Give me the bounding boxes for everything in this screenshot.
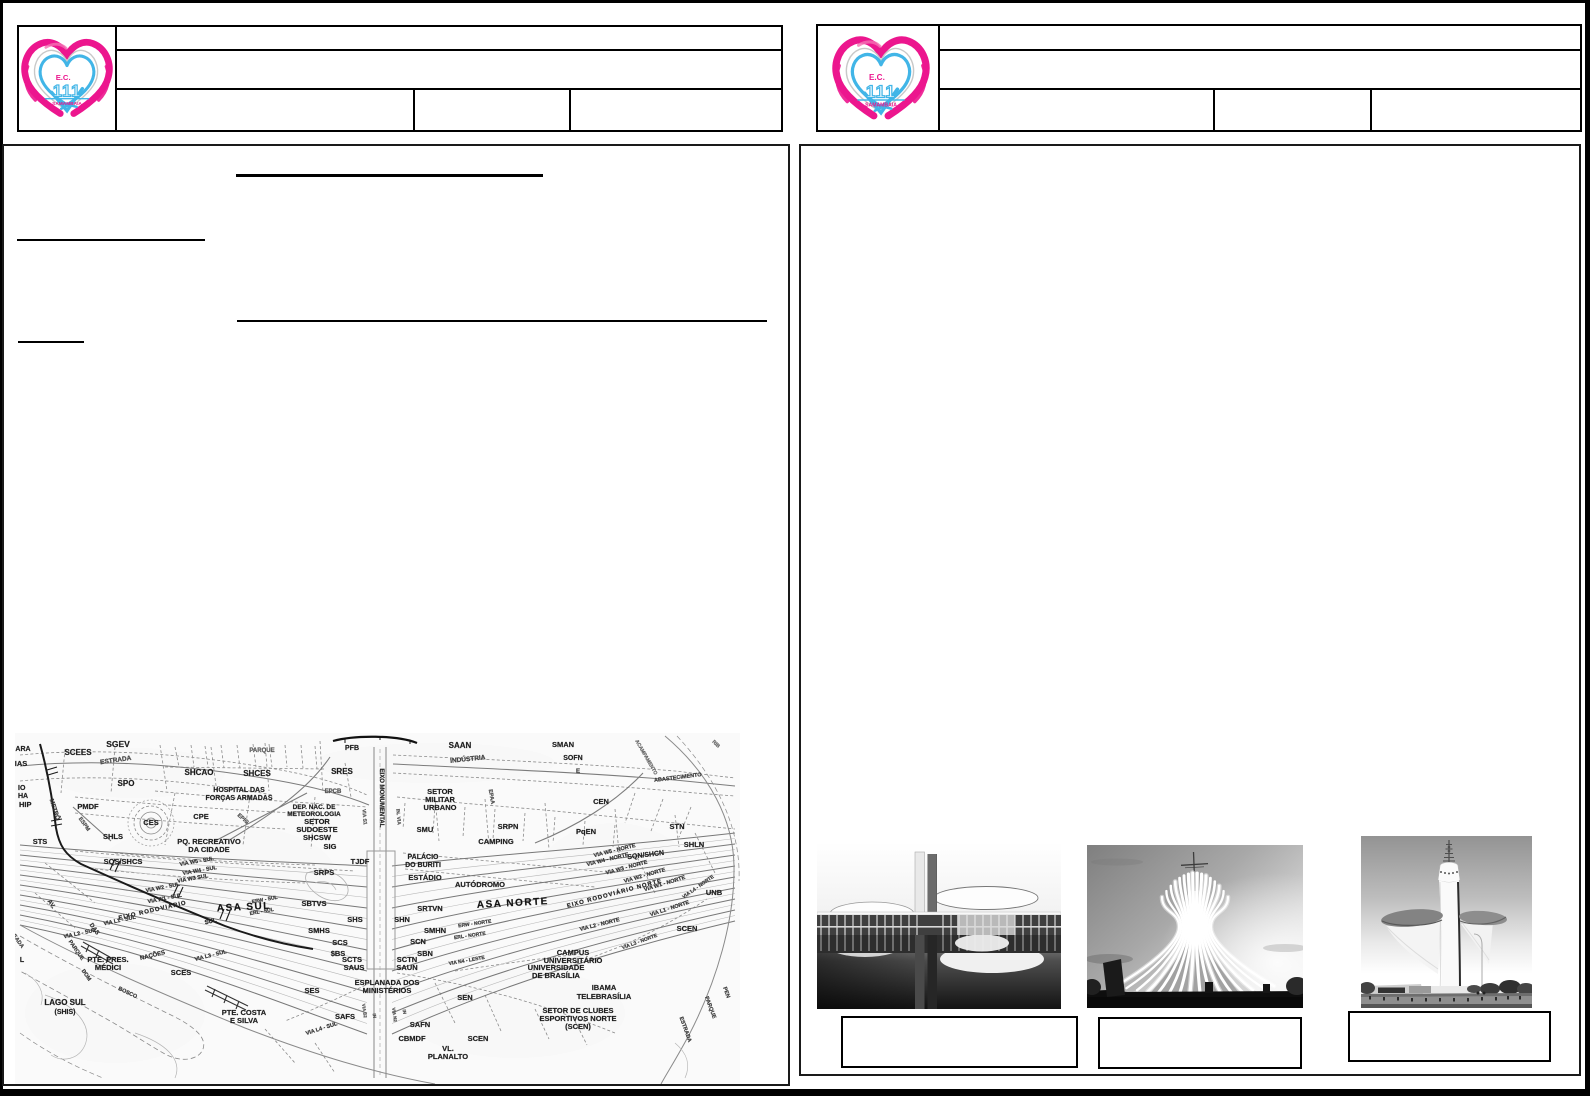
svg-text:SES: SES (304, 986, 319, 995)
svg-text:SBTVS: SBTVS (301, 899, 326, 908)
svg-text:PMDF: PMDF (77, 802, 99, 811)
svg-text:SHLS: SHLS (103, 832, 123, 841)
svg-text:SHS: SHS (347, 915, 362, 924)
svg-text:111: 111 (866, 81, 896, 101)
svg-text:SHN: SHN (394, 915, 410, 924)
svg-text:SHCAO: SHCAO (185, 768, 214, 777)
svg-text:SAUS: SAUS (344, 963, 365, 972)
svg-text:SRTVN: SRTVN (417, 904, 442, 913)
svg-text:SHCSW: SHCSW (303, 833, 332, 842)
svg-text:HA: HA (18, 793, 28, 800)
svg-text:AUTÓDROMO: AUTÓDROMO (455, 880, 505, 889)
svg-text:SCES: SCES (171, 968, 191, 977)
svg-text:111: 111 (53, 82, 81, 100)
svg-text:(SCEN): (SCEN) (565, 1022, 591, 1031)
svg-text:SCS: SCS (332, 938, 347, 947)
svg-text:SBN: SBN (417, 949, 433, 958)
svg-text:CEN: CEN (593, 797, 609, 806)
svg-text:SCEN: SCEN (468, 1034, 489, 1043)
svg-text:SAMAMBAIA: SAMAMBAIA (52, 101, 82, 107)
svg-text:SAMAMBAIA: SAMAMBAIA (865, 103, 897, 109)
svg-text:SCN: SCN (410, 937, 426, 946)
svg-text:IBAMA: IBAMA (592, 983, 617, 992)
svg-text:CES: CES (143, 818, 158, 827)
svg-text:CBMDF: CBMDF (398, 1034, 425, 1043)
svg-text:LAGO SUL: LAGO SUL (44, 998, 85, 1007)
svg-text:SCEN: SCEN (677, 924, 698, 933)
svg-text:SIG: SIG (324, 842, 337, 851)
svg-text:SMHS: SMHS (308, 926, 330, 935)
svg-text:SHLN: SHLN (684, 840, 704, 849)
svg-text:TELEBRASÍLIA: TELEBRASÍLIA (577, 992, 632, 1001)
svg-text:SPO: SPO (118, 779, 135, 788)
svg-text:IAS: IAS (15, 759, 27, 768)
svg-text:SAUN: SAUN (396, 963, 417, 972)
svg-text:PqEN: PqEN (576, 827, 596, 836)
svg-text:STS: STS (33, 837, 48, 846)
svg-text:SAFN: SAFN (410, 1020, 430, 1029)
svg-text:HOSPITAL DAS: HOSPITAL DAS (213, 787, 265, 794)
svg-text:MÉDICI: MÉDICI (95, 963, 121, 972)
svg-text:FORÇAS ARMADAS: FORÇAS ARMADAS (205, 795, 272, 802)
svg-text:SRPN: SRPN (498, 822, 519, 831)
svg-text:HIP: HIP (19, 800, 32, 809)
svg-text:SRES: SRES (331, 767, 353, 776)
svg-text:MINISTÉRIOS: MINISTÉRIOS (363, 986, 412, 995)
svg-text:URBANO: URBANO (424, 803, 457, 812)
svg-text:DO BURITI: DO BURITI (405, 862, 441, 869)
svg-text:SMAN: SMAN (552, 740, 574, 749)
svg-text:ESTÁDIO: ESTÁDIO (408, 873, 442, 882)
svg-text:E: E (576, 769, 580, 775)
svg-text:SAAN: SAAN (449, 741, 472, 750)
svg-text:DE BRASÍLIA: DE BRASÍLIA (532, 971, 581, 980)
svg-text:PFB: PFB (345, 745, 359, 752)
svg-text:IN: IN (372, 1013, 378, 1018)
svg-text:SEN: SEN (457, 993, 472, 1002)
svg-text:CAMPING: CAMPING (478, 837, 514, 846)
svg-text:EIXO MONUMENTAL: EIXO MONUMENTAL (378, 769, 384, 828)
svg-text:EPCB: EPCB (325, 789, 342, 795)
svg-text:ARA: ARA (15, 746, 30, 753)
svg-text:SHCES: SHCES (243, 769, 271, 778)
svg-text:SMHN: SMHN (424, 926, 446, 935)
svg-text:L: L (20, 957, 25, 964)
svg-text:E SILVA: E SILVA (230, 1016, 259, 1025)
svg-text:E.C.: E.C. (56, 73, 71, 82)
svg-text:IO: IO (18, 785, 26, 792)
svg-text:SAFS: SAFS (335, 1012, 355, 1021)
svg-text:SGEV: SGEV (106, 739, 130, 749)
svg-text:IN: IN (402, 1009, 408, 1014)
svg-text:DA CIDADE: DA CIDADE (188, 845, 229, 854)
svg-text:SMU: SMU (417, 825, 434, 834)
svg-text:PLANALTO: PLANALTO (428, 1052, 468, 1061)
svg-text:UNB: UNB (706, 888, 723, 897)
svg-text:SOFN: SOFN (563, 755, 582, 762)
svg-text:SCEES: SCEES (64, 748, 92, 757)
svg-text:TJDF: TJDF (351, 857, 370, 866)
svg-text:(SHIS): (SHIS) (55, 1009, 76, 1016)
svg-text:SQS/SHCS: SQS/SHCS (104, 857, 143, 866)
svg-text:PARQUE: PARQUE (249, 748, 274, 754)
svg-text:STN: STN (670, 822, 685, 831)
svg-text:DEP. NAC. DE: DEP. NAC. DE (293, 804, 337, 811)
svg-text:PALÁCIO: PALÁCIO (408, 852, 440, 861)
svg-text:CPE: CPE (193, 812, 208, 821)
svg-text:SRPS: SRPS (314, 868, 334, 877)
